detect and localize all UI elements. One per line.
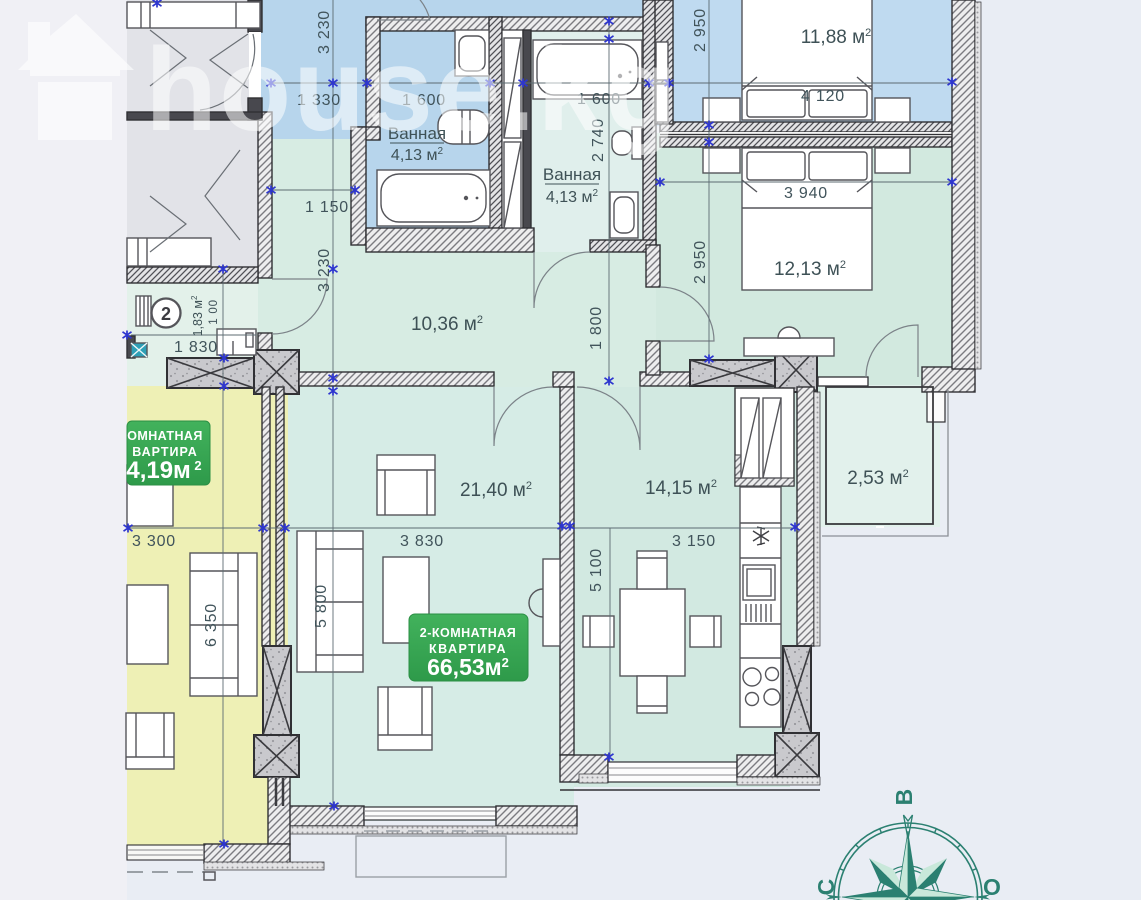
svg-text:3 300: 3 300 (132, 533, 176, 550)
svg-text:Ванная: Ванная (543, 165, 601, 184)
svg-text:1 800: 1 800 (588, 306, 605, 350)
svg-text:66,53м2: 66,53м2 (427, 654, 509, 680)
svg-text:5 800: 5 800 (313, 584, 330, 628)
svg-text:3 940: 3 940 (784, 185, 828, 202)
svg-text:10,36 м2: 10,36 м2 (411, 314, 483, 335)
svg-text:С: С (813, 879, 839, 896)
svg-text:2-КОМНАТНАЯ: 2-КОМНАТНАЯ (420, 626, 517, 640)
svg-text:1 00: 1 00 (208, 299, 220, 325)
svg-text:3 150: 3 150 (672, 533, 716, 550)
svg-text:12,13 м2: 12,13 м2 (774, 259, 846, 280)
svg-text:14,15 м2: 14,15 м2 (645, 478, 717, 499)
svg-text:4,19м 2: 4,19м 2 (126, 457, 201, 484)
svg-text:2 950: 2 950 (692, 8, 709, 52)
svg-text:2: 2 (161, 304, 171, 324)
svg-text:1 150: 1 150 (305, 199, 349, 216)
svg-text:21,40 м2: 21,40 м2 (460, 480, 532, 501)
svg-text:3 230: 3 230 (316, 248, 333, 292)
svg-text:11,88 м2: 11,88 м2 (801, 27, 872, 48)
svg-text:6 350: 6 350 (203, 603, 220, 647)
svg-text:4 120: 4 120 (801, 88, 845, 105)
svg-text:3 830: 3 830 (400, 533, 444, 550)
svg-text:2,53 м2: 2,53 м2 (847, 468, 908, 489)
svg-text:О: О (983, 874, 1001, 900)
svg-text:house.kg: house.kg (145, 24, 679, 156)
svg-text:ОМНАТНАЯ: ОМНАТНАЯ (127, 429, 202, 443)
svg-text:В: В (891, 789, 917, 806)
svg-text:2 950: 2 950 (692, 240, 709, 284)
svg-text:5 100: 5 100 (588, 548, 605, 592)
svg-text:1,83 м2: 1,83 м2 (190, 295, 205, 336)
svg-text:1 830: 1 830 (174, 339, 218, 356)
svg-text:4,13 м2: 4,13 м2 (546, 188, 599, 206)
